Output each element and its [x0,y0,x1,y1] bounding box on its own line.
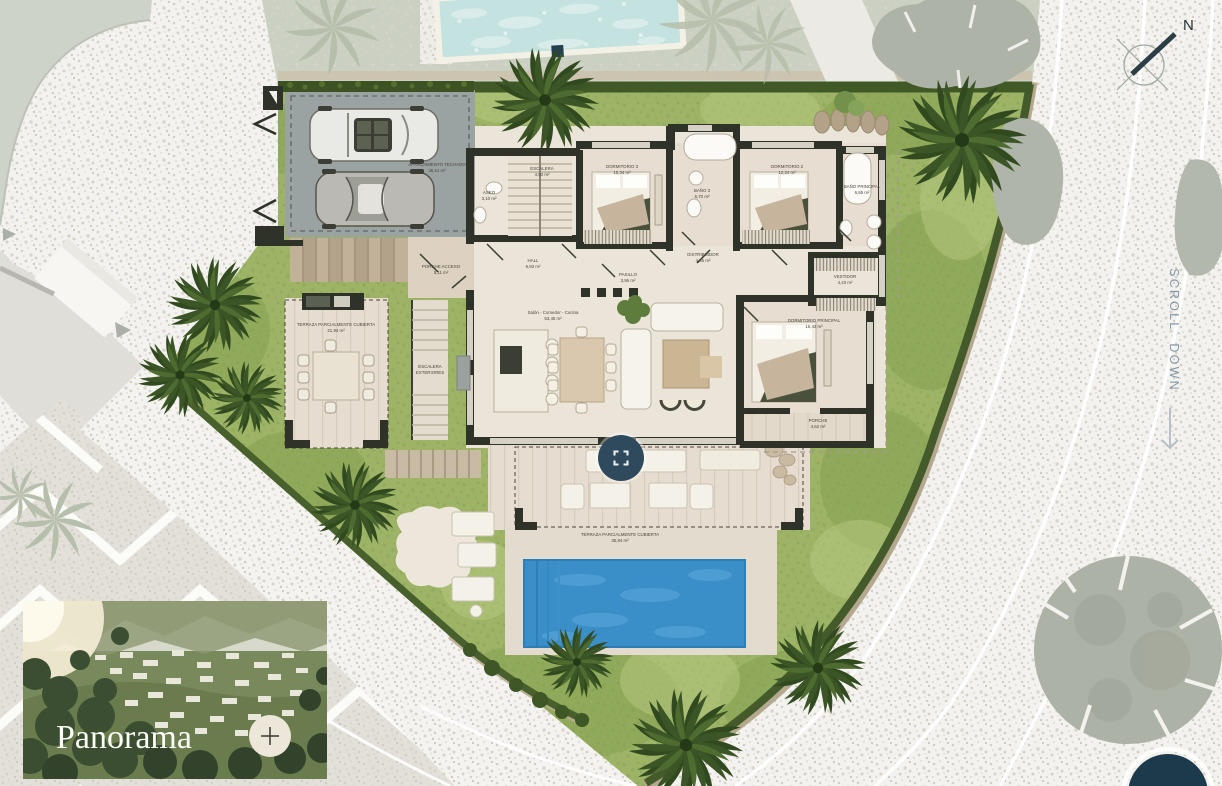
svg-text:Panorama: Panorama [56,719,192,756]
svg-text:4,62 m²: 4,62 m² [811,424,826,429]
svg-text:5,11 m²: 5,11 m² [434,270,449,275]
svg-text:12,24 m²: 12,24 m² [778,170,796,175]
svg-text:VESTIDOR: VESTIDOR [834,274,856,279]
svg-text:DORMITORIO 2: DORMITORIO 2 [771,164,804,169]
svg-text:N: N [1183,17,1194,34]
svg-text:16,43 m²: 16,43 m² [805,324,823,329]
svg-text:6,93 m²: 6,93 m² [526,264,541,269]
svg-text:4,93 m²: 4,93 m² [535,172,550,177]
svg-text:BAÑO 3: BAÑO 3 [694,188,711,193]
svg-text:PASILLO: PASILLO [619,272,638,277]
svg-text:21,94 m²: 21,94 m² [327,328,345,333]
svg-text:DORMITORIO PRINCIPAL: DORMITORIO PRINCIPAL [788,318,841,323]
svg-text:3,96 m²: 3,96 m² [621,278,636,283]
svg-text:TERRAZA PARCIALMENTE CUBIERTA: TERRAZA PARCIALMENTE CUBIERTA [297,322,375,327]
svg-text:PORCHE: PORCHE [809,418,828,423]
svg-text:Salón - Comedor - Cocina: Salón - Comedor - Cocina [528,310,579,315]
svg-text:ESCALERA: ESCALERA [530,166,553,171]
svg-text:4,43 m²: 4,43 m² [838,280,853,285]
svg-text:PORCHE ACCESO: PORCHE ACCESO [422,264,461,269]
svg-text:35,84 m²: 35,84 m² [611,538,629,543]
svg-text:EXTERIORES: EXTERIORES [416,370,444,375]
svg-text:TERRAZA PARCIALMENTE CUBIERTA: TERRAZA PARCIALMENTE CUBIERTA [581,532,659,537]
svg-text:36,61 m²: 36,61 m² [428,168,446,173]
svg-text:ASEO: ASEO [483,190,496,195]
svg-text:HALL: HALL [528,258,540,263]
svg-text:5,70 m²: 5,70 m² [695,194,710,199]
svg-text:15,34 m²: 15,34 m² [613,170,631,175]
svg-text:DORMITORIO 3: DORMITORIO 3 [606,164,639,169]
svg-text:DISTRIBUIDOR: DISTRIBUIDOR [687,252,718,257]
svg-text:53,45 m²: 53,45 m² [544,316,562,321]
svg-text:6,65 m²: 6,65 m² [855,190,870,195]
svg-text:3,10 m²: 3,10 m² [482,196,497,201]
svg-text:4,36 m²: 4,36 m² [696,258,711,263]
svg-text:ESCALERA: ESCALERA [418,364,441,369]
svg-text:BAÑO PRINCIPAL: BAÑO PRINCIPAL [844,184,881,189]
svg-text:SCROLL´ DOWN: SCROLL´ DOWN [1167,268,1181,392]
